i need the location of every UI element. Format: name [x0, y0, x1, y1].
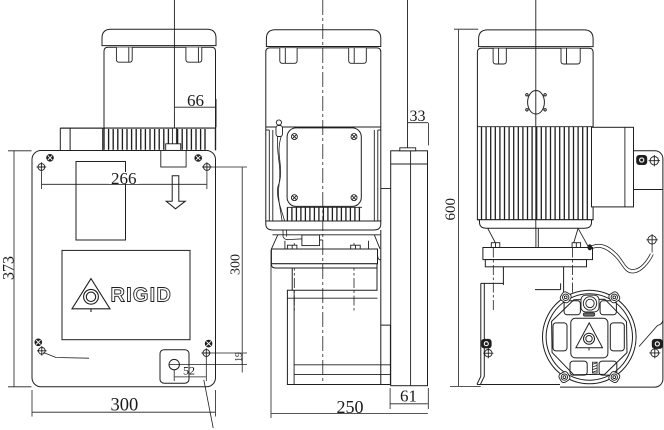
svg-text:266: 266	[111, 169, 137, 188]
svg-text:33: 33	[410, 108, 426, 125]
svg-text:66: 66	[187, 91, 204, 110]
svg-text:250: 250	[337, 397, 364, 417]
svg-text:600: 600	[443, 198, 459, 221]
svg-text:61: 61	[400, 387, 417, 406]
svg-text:RIGID: RIGID	[111, 285, 173, 307]
svg-text:52: 52	[183, 363, 195, 377]
svg-text:300: 300	[111, 396, 139, 416]
svg-text:300: 300	[229, 254, 244, 275]
svg-text:373: 373	[1, 256, 18, 280]
svg-text:19: 19	[234, 352, 244, 362]
